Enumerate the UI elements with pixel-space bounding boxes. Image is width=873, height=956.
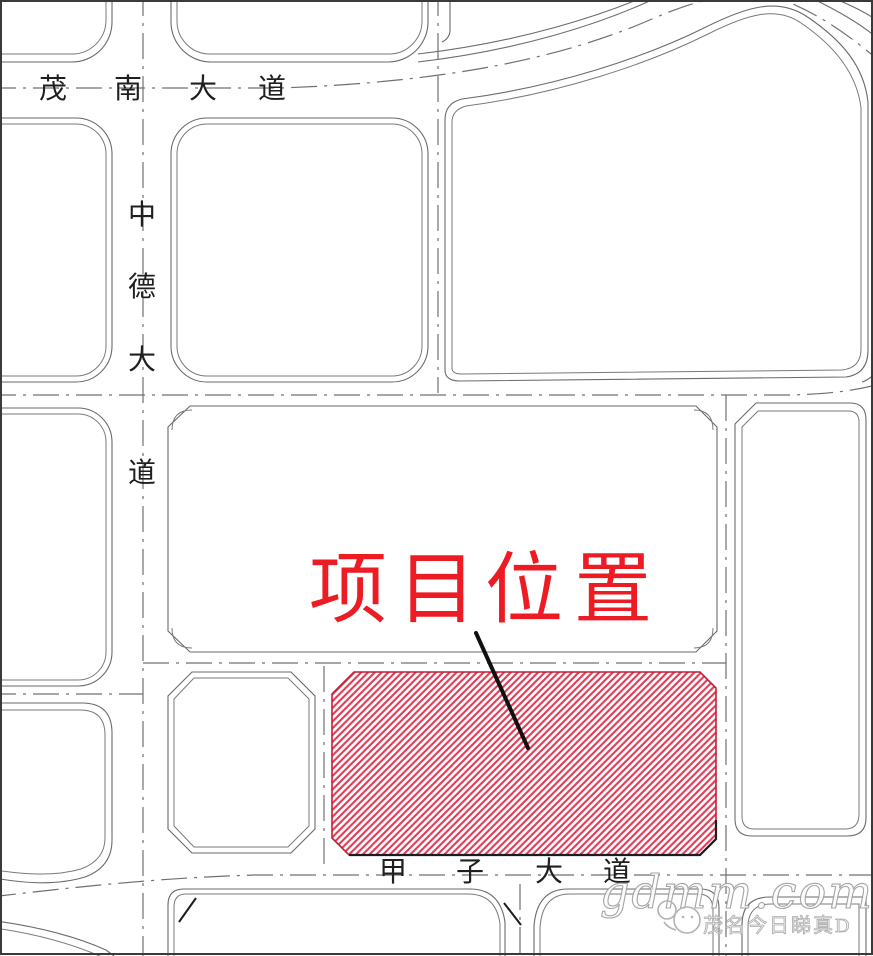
block-inner-line (742, 411, 859, 829)
road-label-char: 南 (114, 73, 142, 105)
title-char: 置 (574, 546, 652, 633)
block-outline (0, 118, 112, 382)
road-label-char: 道 (258, 73, 286, 105)
road-label-char: 大 (189, 73, 217, 105)
project-site (332, 633, 716, 855)
block-outline (0, 0, 112, 62)
block-inner-line (174, 678, 309, 847)
road-label-char: 中 (128, 199, 156, 231)
block-inner-line (0, 710, 105, 874)
road-label-char: 道 (128, 457, 156, 489)
block-inner-line (177, 0, 422, 54)
block-outline (171, 118, 428, 382)
road-label-char: 大 (535, 856, 563, 888)
block-inner-line (0, 124, 106, 376)
location-map-figure: 茂 南 大 道 中 德 大 道 甲 子 大 道 项 目 位 置 gdmm.com… (0, 0, 873, 956)
title-char: 项 (309, 546, 387, 633)
block-inner-line (452, 14, 861, 374)
watermark-brand-text: gdmm.com (600, 865, 873, 919)
centerline-middle-road (0, 385, 873, 395)
road-label-jiazi: 甲 子 大 道 (379, 856, 631, 888)
road-label-char: 德 (128, 271, 156, 303)
block-inner-line (0, 414, 106, 680)
avenue-edge-lines (418, 0, 873, 382)
road-label-char: 子 (456, 857, 484, 888)
block-inner-line (177, 124, 422, 376)
project-location-title: 项 目 位 置 (309, 546, 652, 633)
road-label-char: 甲 (379, 857, 407, 888)
block-inner-line (0, 0, 106, 54)
watermark: gdmm.com 茂名今日睇真D (600, 865, 873, 937)
curb-mark (179, 898, 196, 922)
road-label-char: 大 (128, 344, 156, 376)
road-label-maonan: 茂 南 大 道 (39, 73, 286, 105)
road-edge-line (418, 0, 873, 54)
block-outline (168, 672, 315, 853)
road-edge-line (442, 0, 450, 42)
block-outline (171, 0, 428, 62)
road-label-char: 茂 (39, 73, 67, 105)
title-char: 目 (398, 546, 476, 633)
project-site-area (332, 672, 716, 855)
curb-mark (504, 903, 521, 925)
block-outline (0, 920, 114, 956)
road-label-zhongde: 中 德 大 道 (128, 199, 156, 489)
block-outline (0, 408, 112, 686)
block-outline (445, 6, 868, 381)
location-map-svg: 茂 南 大 道 中 德 大 道 甲 子 大 道 项 目 位 置 gdmm.com… (0, 0, 873, 956)
block-outline (168, 889, 505, 956)
block-inner-line (174, 894, 500, 956)
block-outline (0, 703, 112, 883)
block-outline (735, 403, 866, 836)
title-char: 位 (485, 546, 563, 633)
watermark-account-text: 茂名今日睇真D (703, 914, 851, 937)
